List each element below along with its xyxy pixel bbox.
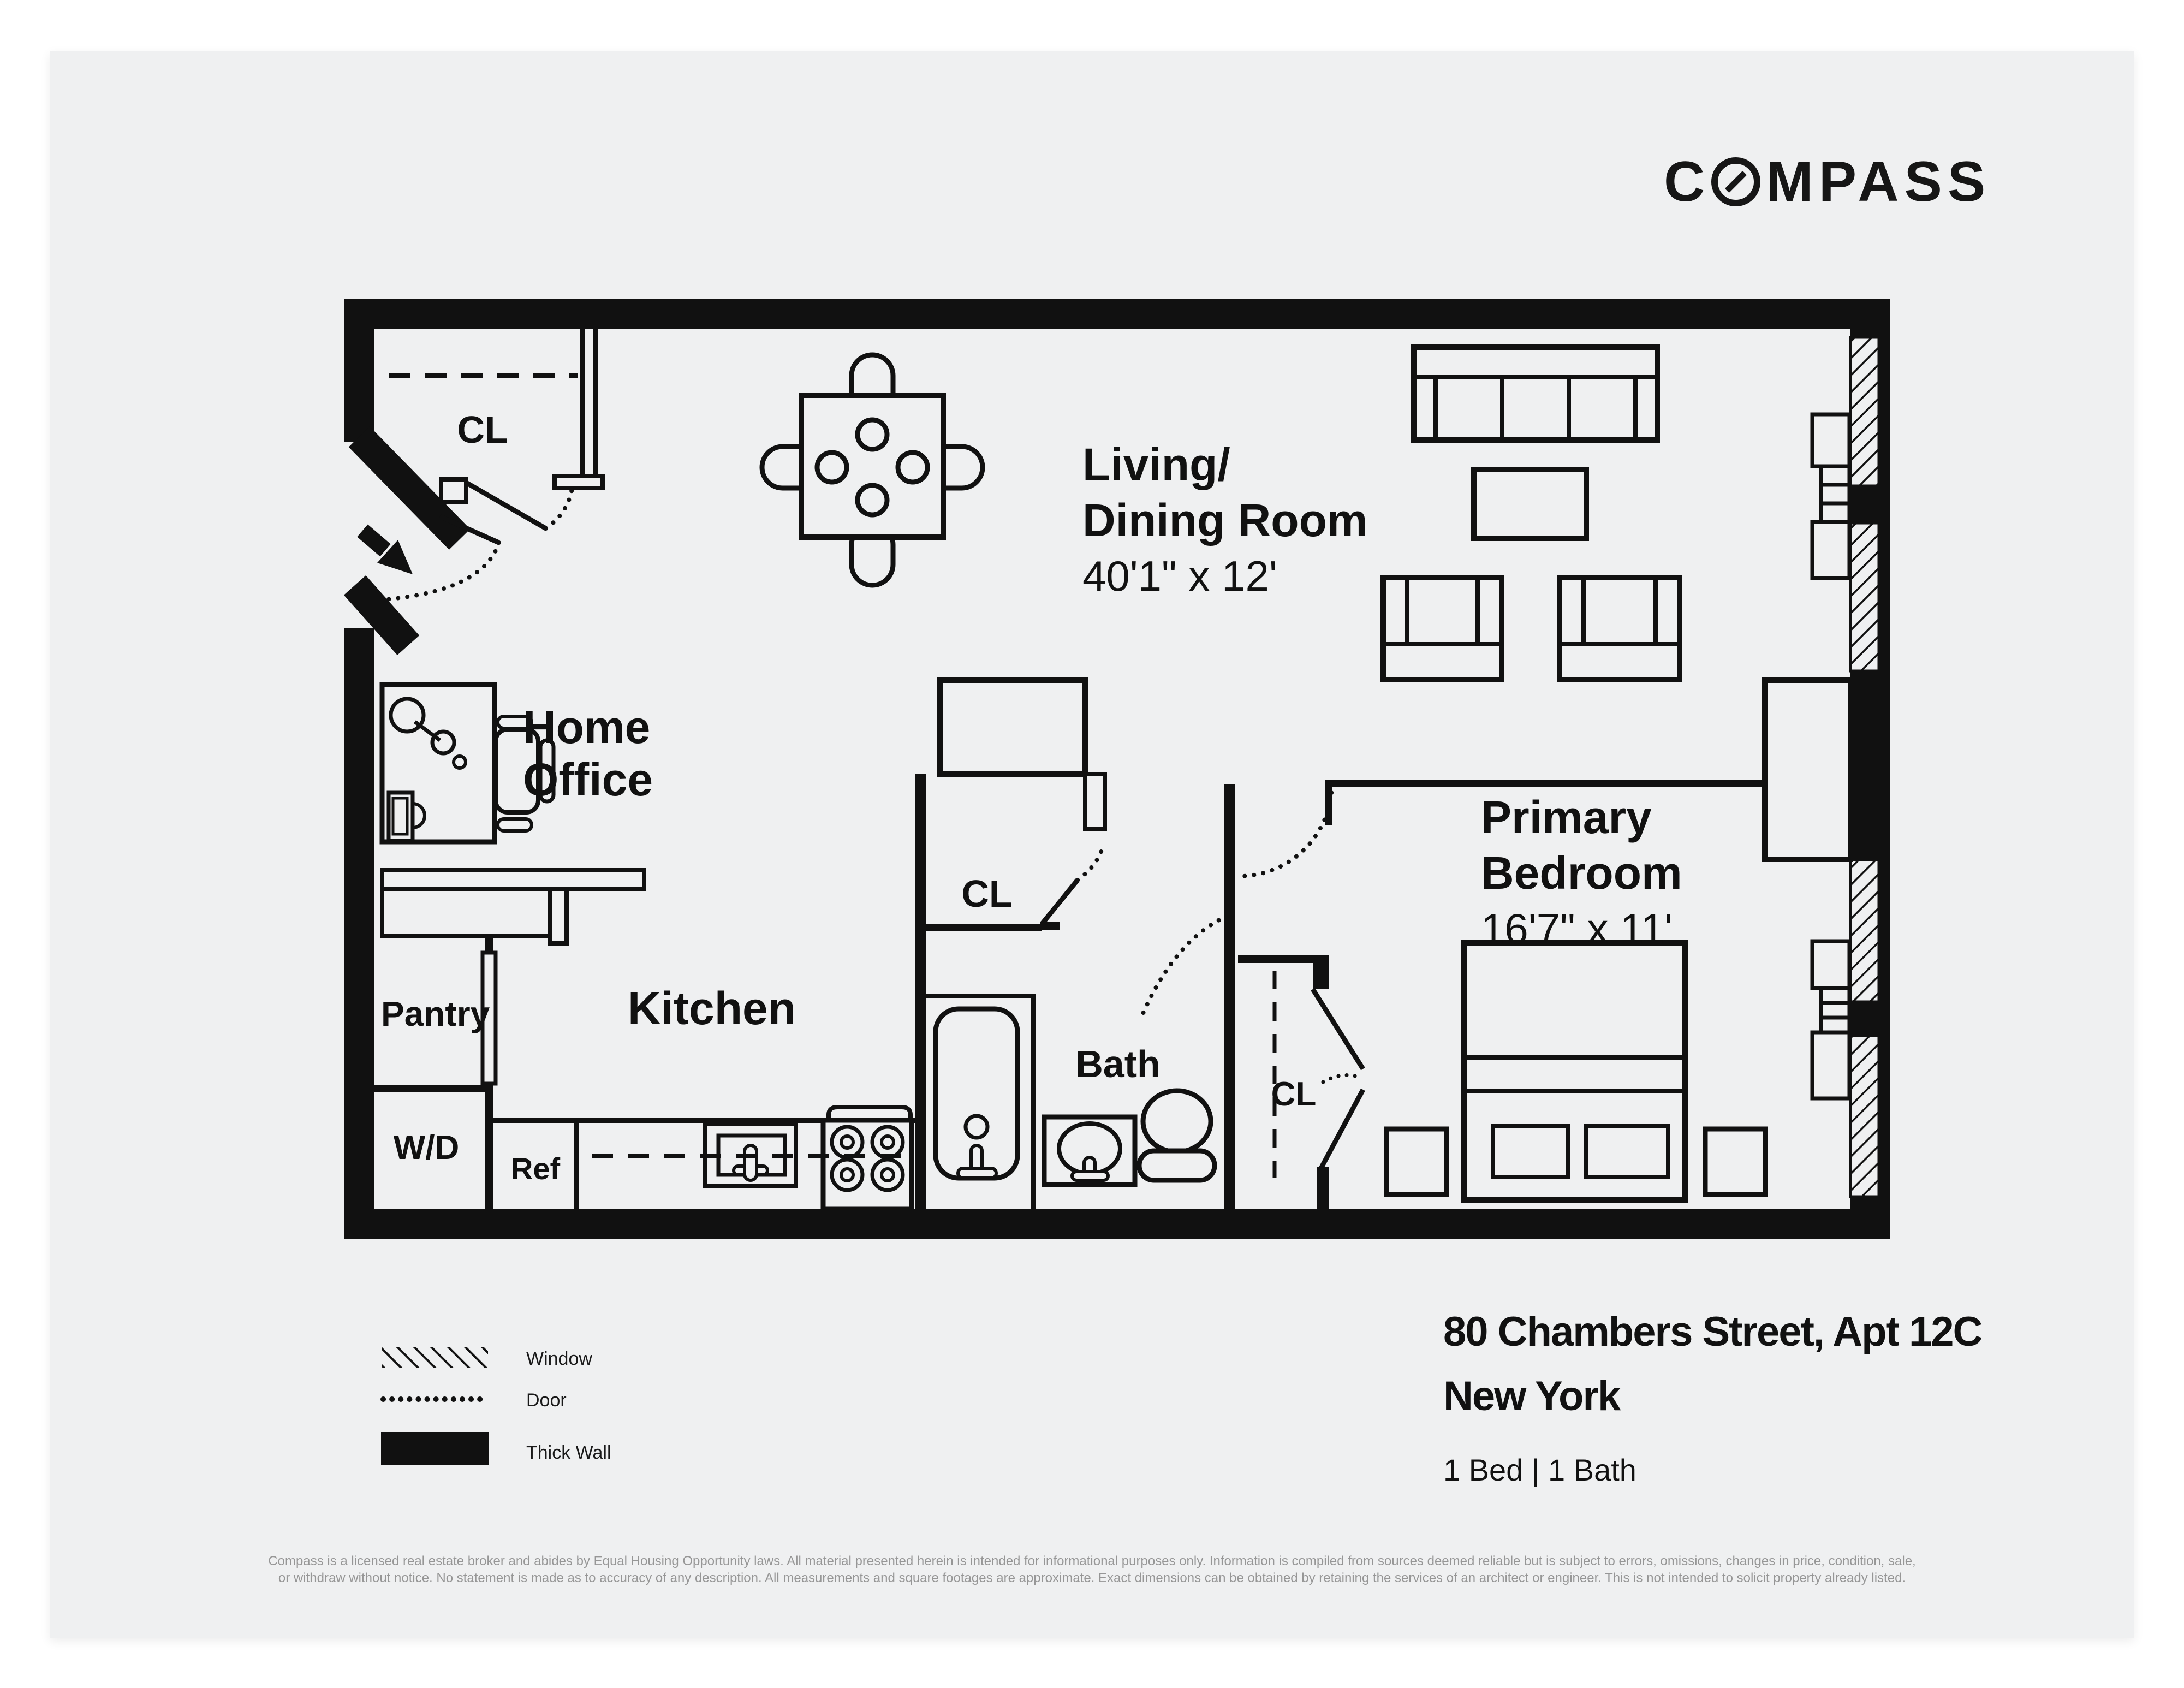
disclaimer-line2: or withdraw without notice. No statement…	[104, 1570, 2080, 1586]
listing-address-line1: 80 Chambers Street, Apt 12C	[1443, 1308, 1981, 1356]
compass-needle-icon	[1725, 171, 1747, 193]
radiator-bedroom	[1812, 941, 1849, 1098]
compass-logo: CMPASS	[1664, 152, 1991, 212]
living-dining-name-1: Living/	[1082, 437, 1368, 492]
primary-bedroom-dimensions: 16'7" x 11'	[1481, 901, 1682, 956]
bed	[1464, 943, 1685, 1200]
dining-set	[762, 355, 983, 585]
living-dining-dimensions: 40'1" x 12'	[1082, 548, 1368, 604]
home-office-name-1: Home	[523, 701, 653, 753]
refrigerator-label: Ref	[511, 1141, 560, 1197]
primary-bedroom-name-1: Primary	[1481, 789, 1682, 845]
disclaimer-line1: Compass is a licensed real estate broker…	[104, 1553, 2080, 1570]
primary-bedroom-label: Primary Bedroom 16'7" x 11'	[1481, 789, 1682, 956]
nightstand	[1705, 1129, 1765, 1194]
pantry-label: Pantry	[381, 986, 490, 1042]
primary-bedroom-name-2: Bedroom	[1481, 845, 1682, 901]
legend-thick-wall-label: Thick Wall	[526, 1442, 611, 1464]
legend-door-label: Door	[526, 1390, 567, 1411]
armchair	[1383, 578, 1502, 680]
armchair	[1560, 578, 1680, 680]
office-desk	[382, 685, 495, 842]
home-office-name-2: Office	[523, 753, 653, 806]
home-office-label: Home Office	[523, 701, 653, 806]
listing-address-line2: New York	[1443, 1372, 1620, 1420]
logo-prefix: C	[1664, 150, 1710, 215]
washer-dryer-label: W/D	[394, 1120, 460, 1176]
bathtub	[936, 1009, 1017, 1178]
bath-label: Bath	[1075, 1036, 1161, 1092]
logo-suffix: MPASS	[1766, 150, 1991, 215]
legend-window-swatch	[382, 1347, 488, 1368]
kitchen-label: Kitchen	[628, 980, 796, 1036]
entry-closet-label: CL	[457, 402, 508, 457]
bath-vanity	[1044, 1117, 1135, 1185]
legend-window-label: Window	[526, 1348, 592, 1370]
radiator-living	[1812, 414, 1849, 578]
bedroom-closet-label: CL	[1271, 1067, 1317, 1122]
sofa	[1414, 347, 1657, 440]
disclaimer: Compass is a licensed real estate broker…	[104, 1553, 2080, 1586]
nightstand	[1386, 1129, 1447, 1194]
hall-closet-label: CL	[961, 866, 1012, 922]
legend-thick-wall-swatch	[381, 1432, 489, 1465]
floorplan-drawing	[0, 0, 2184, 1688]
living-dining-label: Living/ Dining Room 40'1" x 12'	[1082, 437, 1368, 604]
coffee-table	[1474, 469, 1586, 538]
compass-o-icon	[1711, 157, 1760, 206]
listing-bed-bath: 1 Bed | 1 Bath	[1443, 1452, 1636, 1488]
living-dining-name-2: Dining Room	[1082, 492, 1368, 548]
toilet	[1139, 1091, 1215, 1180]
counter-shelf	[382, 870, 644, 943]
entry-arrow-icon	[362, 531, 413, 574]
